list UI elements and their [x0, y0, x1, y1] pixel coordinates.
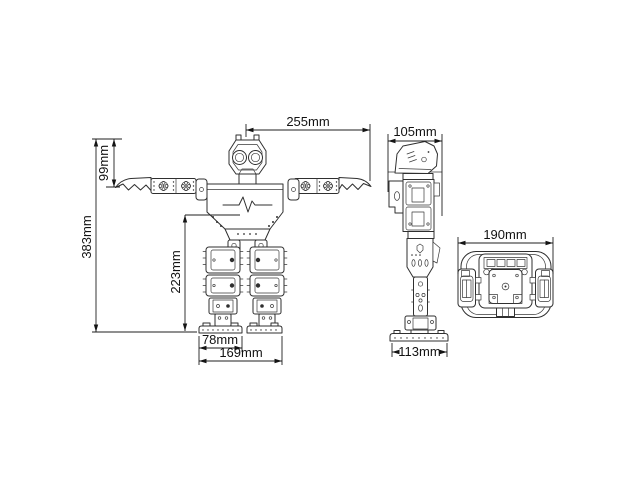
side-head: [395, 142, 438, 180]
top-center-plate: [489, 270, 522, 304]
side-shin: [412, 277, 430, 316]
shoulder-joint-right: [288, 179, 299, 200]
top-lower-tab: [497, 308, 515, 317]
shoulder-width-dimension-label: 190mm: [483, 227, 526, 242]
foot-length-dimension-label: 113mm: [398, 344, 440, 359]
top-head-plate: [484, 258, 527, 269]
drawing-canvas: 255mm 99mm 383mm 223mm 78mm: [0, 0, 640, 480]
side-view: [388, 142, 448, 342]
eye-right: [249, 151, 263, 165]
side-torso: [389, 180, 440, 239]
arm-span-dimension-label: 255mm: [286, 114, 329, 129]
dimension-foot-length: 113mm: [392, 343, 447, 359]
shoulder-joint-left: [196, 179, 207, 200]
top-view: [458, 252, 553, 318]
front-arm-right: [294, 178, 371, 194]
side-depth-dimension-label: 105mm: [393, 124, 436, 139]
front-leg-right: [247, 247, 287, 333]
top-shoulder-left: [458, 269, 481, 307]
hip-plate: [225, 229, 270, 240]
dimension-arm-span: 255mm: [246, 114, 370, 181]
neck: [239, 174, 256, 185]
side-arm-bracket: [389, 181, 403, 213]
head-to-arm-dimension-label: 99mm: [96, 145, 111, 181]
top-shoulder-right: [530, 269, 553, 307]
dimensions: 255mm 99mm 383mm 223mm 78mm: [79, 114, 553, 365]
front-head: [229, 135, 266, 185]
side-foot: [390, 316, 448, 341]
side-thigh: [407, 239, 440, 278]
front-arm-left: [116, 178, 197, 194]
front-view: [116, 135, 372, 333]
front-leg-left: [199, 247, 243, 333]
robot-dimension-drawing: 255mm 99mm 383mm 223mm 78mm: [0, 0, 640, 480]
overall-height-dimension-label: 383mm: [79, 215, 94, 258]
leg-height-dimension-label: 223mm: [168, 250, 183, 293]
eye-left: [233, 151, 247, 165]
stance-width-dimension-label: 169mm: [219, 345, 262, 360]
